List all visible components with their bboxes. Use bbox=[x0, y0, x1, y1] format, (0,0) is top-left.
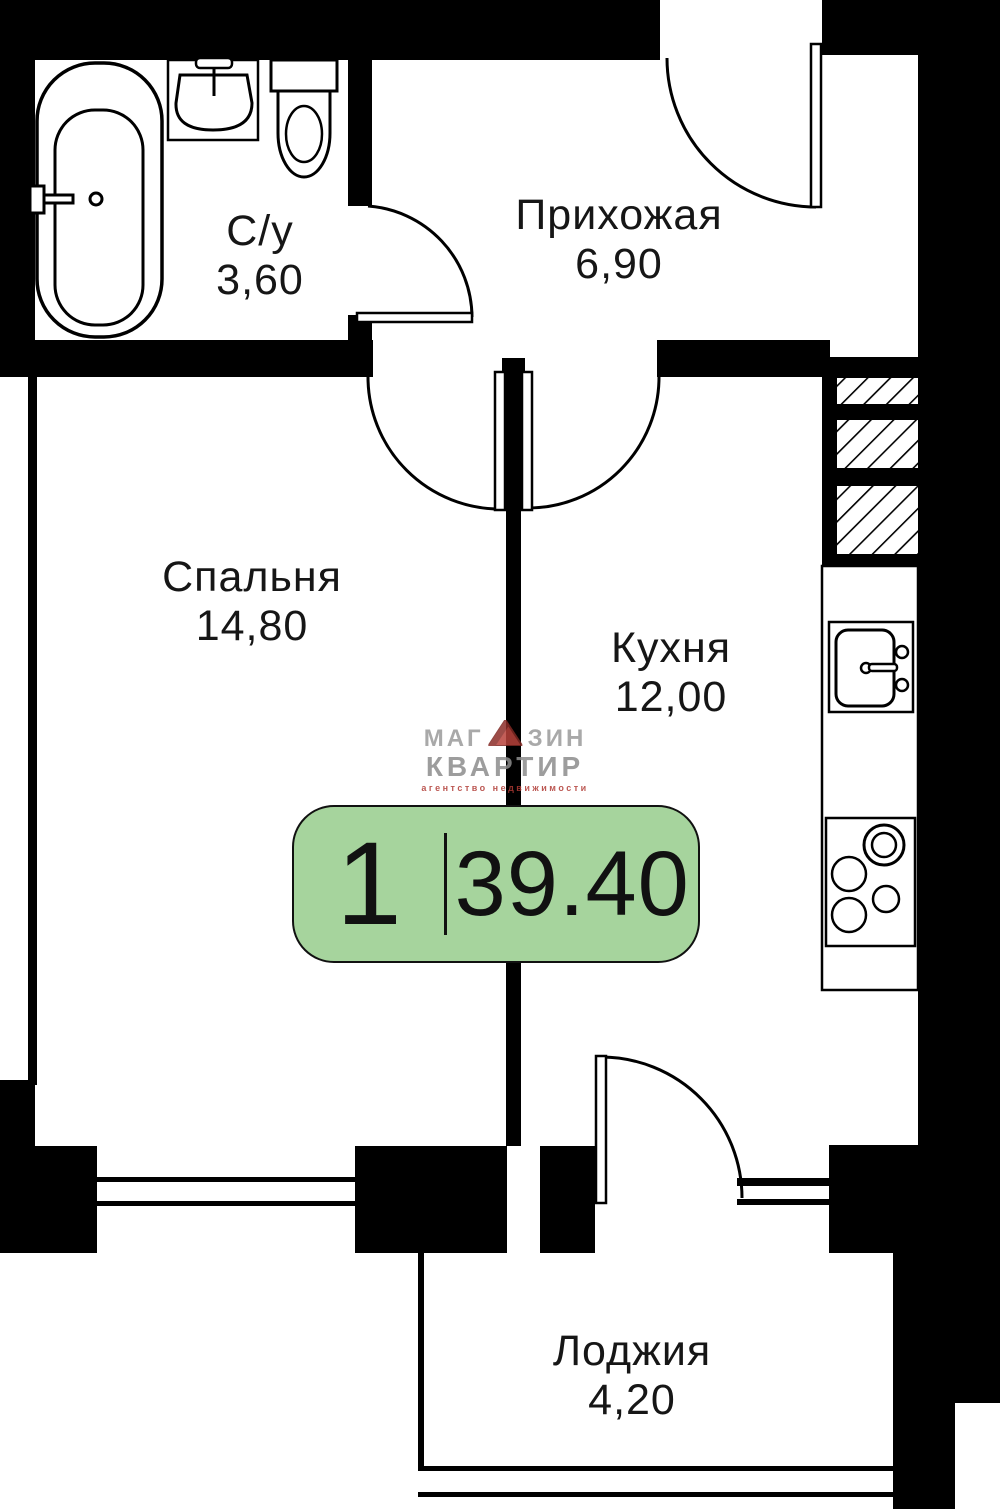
room-name: Лоджия bbox=[553, 1327, 711, 1376]
bathtub-icon bbox=[30, 63, 162, 337]
kitchen-fixtures bbox=[822, 566, 918, 990]
logo-text-left: МАГ bbox=[424, 727, 484, 751]
room-area: 14,80 bbox=[162, 602, 342, 651]
room-area: 3,60 bbox=[216, 256, 304, 305]
kitchen-door bbox=[522, 372, 659, 510]
room-name: С/у bbox=[216, 207, 304, 256]
room-label-hallway: Прихожая 6,90 bbox=[515, 191, 722, 289]
room-area: 4,20 bbox=[553, 1376, 711, 1425]
stove-icon bbox=[826, 818, 915, 946]
logo-line1: МАГ ЗИН bbox=[421, 720, 588, 751]
room-label-kitchen: Кухня 12,00 bbox=[611, 624, 731, 722]
room-name: Прихожая bbox=[515, 191, 722, 240]
logo-line2: КВАРТИР bbox=[421, 752, 588, 782]
logo-triangle-icon bbox=[489, 720, 523, 751]
room-name: Спальня bbox=[162, 553, 342, 602]
room-name: Кухня bbox=[611, 624, 731, 673]
room-area: 12,00 bbox=[611, 673, 731, 722]
badge-total-area: 39.40 bbox=[447, 834, 699, 934]
room-label-bedroom: Спальня 14,80 bbox=[162, 553, 342, 651]
bedroom-window bbox=[97, 1177, 355, 1182]
apartment-badge: 1 39.40 bbox=[292, 805, 700, 963]
logo-text-right: ЗИН bbox=[528, 727, 587, 751]
toilet-icon bbox=[271, 60, 337, 177]
entrance-door bbox=[667, 44, 821, 207]
kitchen-window bbox=[737, 1178, 829, 1186]
logo-tagline: агентство недвижимости bbox=[421, 783, 588, 794]
badge-rooms-count: 1 bbox=[294, 825, 444, 943]
floor-plan: С/у 3,60 Прихожая 6,90 Спальня 14,80 Кух… bbox=[0, 0, 1000, 1509]
room-label-loggia: Лоджия 4,20 bbox=[553, 1327, 711, 1425]
loggia-glazing bbox=[418, 1466, 893, 1471]
bedroom-door bbox=[368, 372, 505, 510]
room-area: 6,90 bbox=[515, 240, 722, 289]
bathroom-door bbox=[357, 206, 472, 322]
room-label-bathroom: С/у 3,60 bbox=[216, 207, 304, 305]
loggia-left-wall bbox=[418, 1253, 424, 1468]
agency-logo: МАГ ЗИН КВАРТИР агентство недвижимости bbox=[421, 720, 588, 794]
kitchen-sink-icon bbox=[829, 622, 913, 712]
washbasin-icon bbox=[168, 58, 258, 140]
balcony-door bbox=[596, 1056, 742, 1203]
